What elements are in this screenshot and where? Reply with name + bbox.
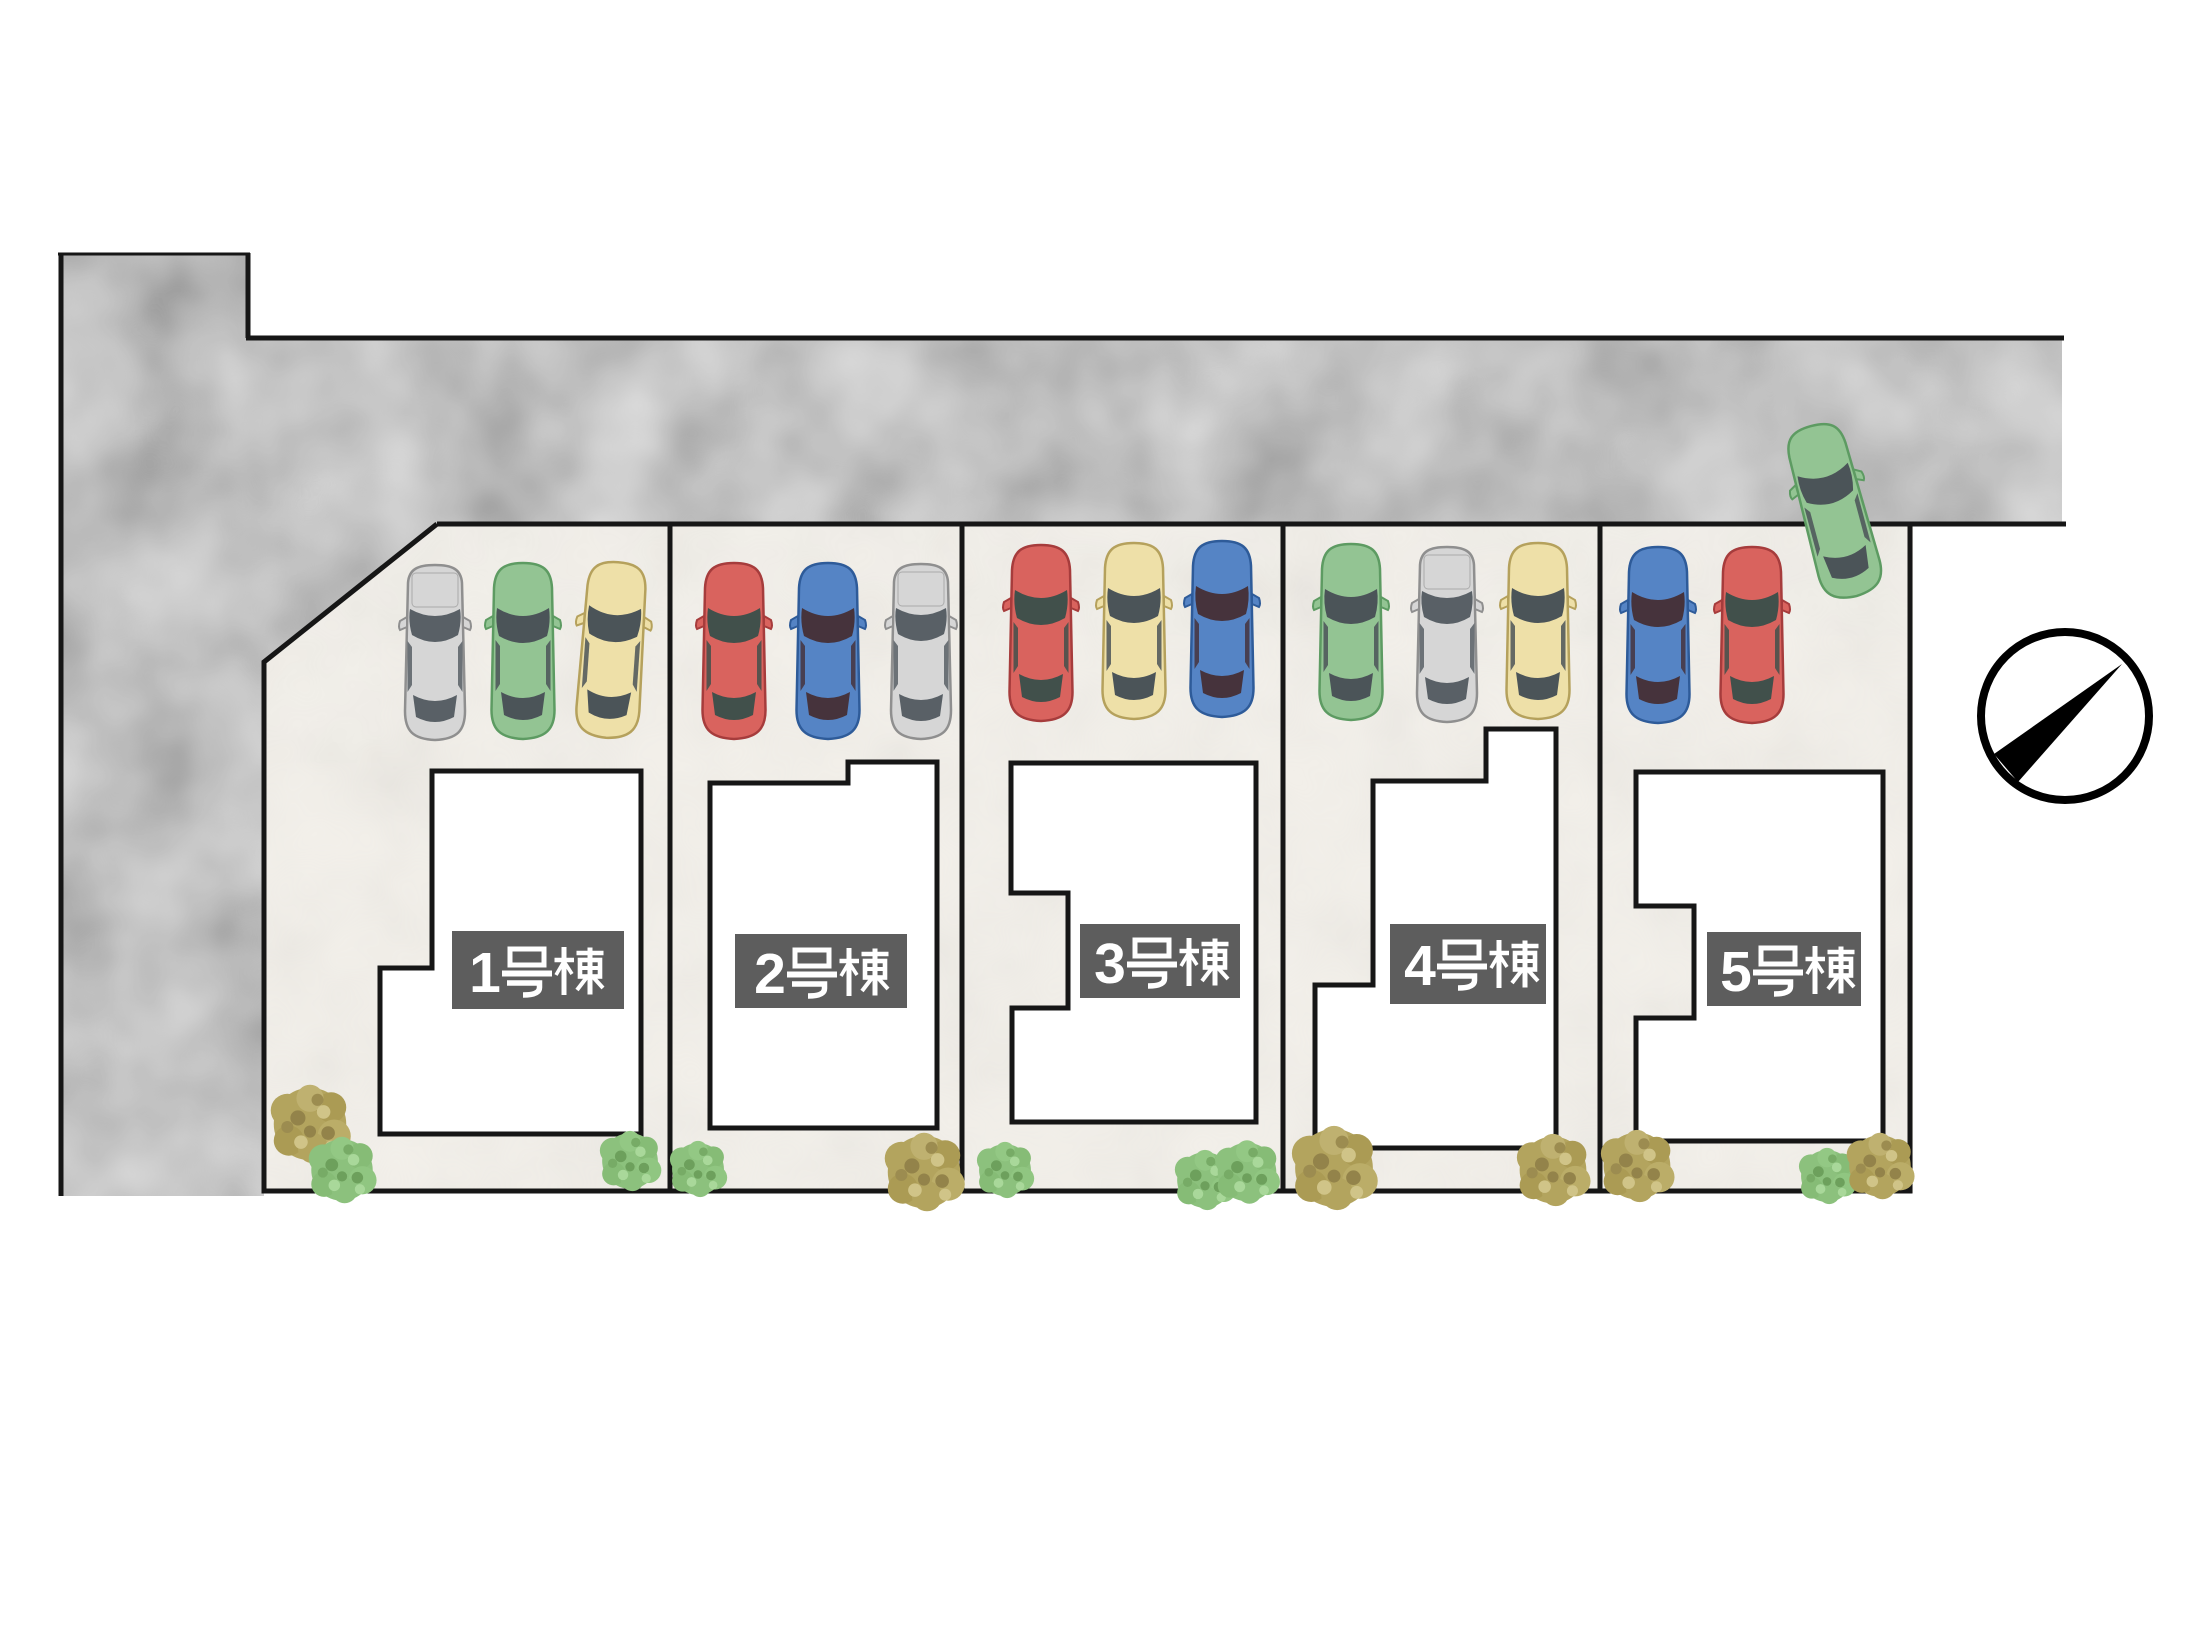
svg-text:1: 1 [469, 941, 501, 1005]
svg-text:4: 4 [1404, 934, 1436, 998]
svg-text:3: 3 [1094, 932, 1126, 996]
svg-text:5: 5 [1720, 940, 1752, 1004]
svg-text:2: 2 [754, 942, 786, 1006]
